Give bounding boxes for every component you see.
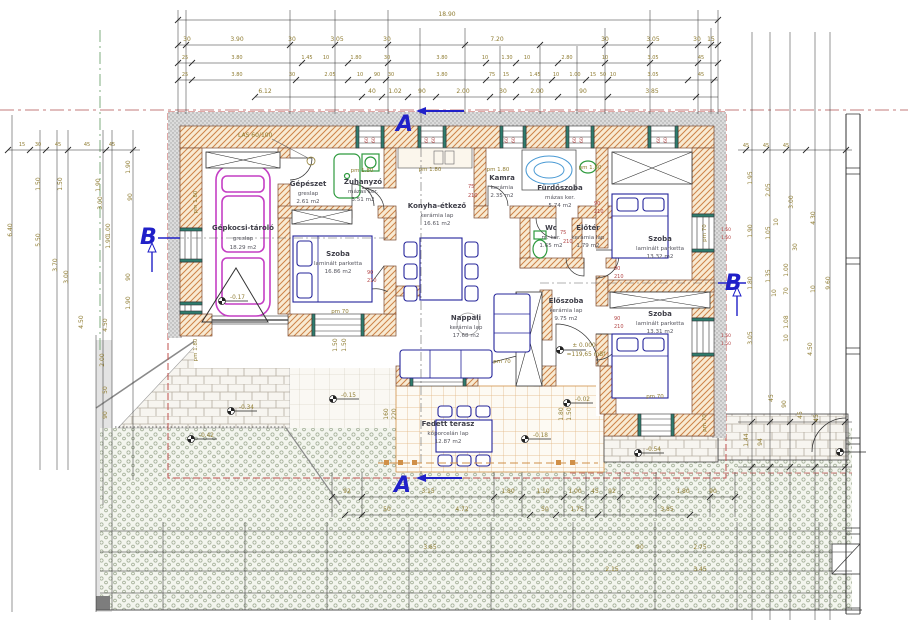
- svg-text:90: 90: [614, 266, 620, 272]
- dimension-value: 3.05: [647, 55, 658, 61]
- dimension-value: 6.40: [7, 223, 14, 237]
- dimension-value: 3.00: [97, 196, 104, 210]
- dimension-value: 45: [797, 411, 804, 419]
- parapet-label: pm 70: [331, 309, 349, 315]
- parapet-label: pm 70: [702, 414, 708, 432]
- dim-row-left-small: 1530454545: [19, 142, 115, 148]
- room-name: Kamra: [489, 174, 515, 182]
- level-value: -0.18: [533, 433, 548, 439]
- parapet-label: pm 70: [646, 394, 664, 400]
- dimension-value: 70: [783, 287, 790, 295]
- dimension-value: 3.00: [63, 270, 70, 284]
- svg-text:60: 60: [424, 137, 430, 143]
- dimension-value: 10: [553, 72, 559, 78]
- level-value: -0.54: [646, 447, 661, 453]
- level-value: -0.34: [239, 405, 254, 411]
- section-a-top-label: A: [394, 112, 413, 137]
- room-name: Zuhanyzó: [344, 178, 382, 186]
- dimension-value: 3.00: [788, 195, 795, 209]
- dimension-value: 3.05: [647, 72, 658, 78]
- dimension-value: 5.50: [35, 233, 42, 247]
- dimension-value: 10: [771, 289, 778, 297]
- dimension-value: 1.00: [105, 223, 112, 237]
- dimension-value: 1.44: [743, 433, 750, 447]
- dimension-value: 1.00: [569, 72, 580, 78]
- room-area: 3.51 m2: [351, 197, 374, 203]
- dimension-value: 90: [579, 88, 587, 95]
- level-value: -0.42: [199, 433, 214, 439]
- dimension-value: 30: [288, 36, 296, 43]
- parapet-label: pm 70: [493, 359, 511, 365]
- dimension-value: 1.90: [95, 178, 102, 192]
- room-name: Előtér: [576, 223, 600, 232]
- dimension-value: 1.45: [529, 72, 540, 78]
- parapet-label: pm 1.80: [193, 190, 199, 213]
- dimension-value: 3.15: [421, 488, 435, 495]
- dimension-value: 1.00: [783, 263, 790, 277]
- room-floor: kőporcelán lap: [427, 430, 469, 437]
- dimension-value: 3.80: [436, 72, 447, 78]
- dimension-value: 45: [55, 142, 61, 148]
- dimension-value: 30: [693, 36, 701, 43]
- dimension-value: 30: [384, 55, 390, 61]
- svg-text:60: 60: [511, 137, 517, 143]
- dimension-value: 15: [503, 72, 509, 78]
- dimension-value: 45: [763, 143, 769, 149]
- room-floor: laminált parketta: [636, 320, 684, 327]
- dimension-value: 4.30: [810, 211, 817, 225]
- dimension-value: 15: [590, 72, 596, 78]
- dimension-value: 45: [698, 72, 704, 78]
- dimension-value: 10: [357, 72, 363, 78]
- dimension-value: 45: [783, 143, 789, 149]
- dimension-value: 90: [125, 273, 132, 281]
- dimension-value: 4.72: [455, 506, 469, 513]
- dimension-value: 90: [127, 193, 134, 201]
- dimension-value: 1.75: [570, 506, 584, 513]
- dimension-value: 15: [19, 142, 25, 148]
- room-floor: greslap: [298, 191, 319, 197]
- dimension-value: 25: [182, 55, 188, 61]
- svg-text:1.50: 1.50: [721, 227, 731, 233]
- terrace-tiles: [396, 386, 604, 472]
- dimension-value: 1.50: [35, 177, 42, 191]
- dimension-value: 6.12: [258, 88, 272, 95]
- room-floor: laminált parketta: [314, 260, 362, 267]
- dimension-value: 1.50: [57, 177, 64, 191]
- dimension-value: 30: [792, 243, 799, 251]
- svg-text:1.50: 1.50: [721, 235, 731, 241]
- dimension-value: 1.90: [747, 224, 754, 238]
- dimension-value: 30: [499, 88, 507, 95]
- dimension-value: 25: [182, 72, 188, 78]
- svg-text:60: 60: [371, 137, 377, 143]
- dimension-value: 90: [374, 72, 380, 78]
- room-area: 16.86 m2: [325, 269, 352, 275]
- dimension-value: 45: [84, 142, 90, 148]
- dimension-value: 3.05: [747, 331, 754, 345]
- window-south-room: [312, 314, 364, 336]
- room-area: 12.87 m2: [435, 439, 462, 445]
- window-left-1: [180, 228, 202, 262]
- svg-text:210: 210: [563, 239, 573, 245]
- room-label-nappali: Nappali kerámia lap 17.68 m2: [450, 314, 483, 339]
- dimension-value: 9.60: [825, 276, 832, 290]
- dimension-value: 10: [810, 285, 817, 293]
- section-b-left-label: B: [140, 225, 157, 250]
- dimension-value: 1.05: [765, 226, 772, 240]
- dimension-value: 1.50: [341, 338, 348, 352]
- dimension-value: 1.30: [501, 55, 512, 61]
- window-south-szoba2: [638, 414, 674, 436]
- dimension-value: 3.65: [423, 544, 437, 551]
- svg-text:75: 75: [468, 184, 474, 190]
- svg-text:75: 75: [560, 230, 566, 236]
- room-floor: kerámia: [491, 184, 514, 191]
- dimension-value: 45: [768, 394, 775, 402]
- level-value: -0.02: [575, 397, 590, 403]
- parapet-label: pm 1.80: [193, 338, 199, 361]
- dimension-value: 2.05: [324, 72, 335, 78]
- dimension-value: 3.05: [646, 36, 660, 43]
- svg-text:210: 210: [468, 193, 478, 199]
- room-floor: m. ker.: [541, 235, 560, 241]
- parapet-label: pm 1.80: [419, 167, 442, 173]
- dimension-value: 10: [323, 55, 329, 61]
- bed-right-bottom: [612, 334, 668, 398]
- svg-text:1.50: 1.50: [721, 341, 731, 347]
- dimension-value: 30: [35, 142, 41, 148]
- window-top-1: [356, 126, 384, 148]
- room-floor: kerámia lap: [550, 307, 583, 314]
- dimension-value: 3.85: [660, 506, 674, 513]
- window-left-2: [180, 302, 202, 314]
- dimension-value: 2.00: [456, 88, 470, 95]
- svg-text:90: 90: [614, 316, 620, 322]
- svg-text:210: 210: [594, 209, 604, 215]
- garage-door: [212, 316, 288, 324]
- dimension-value: 2.75: [693, 544, 707, 551]
- dimension-value: 2.15: [605, 566, 619, 573]
- svg-text:90: 90: [367, 270, 373, 276]
- dimension-value: 1.90: [125, 160, 132, 174]
- dimension-value: 90: [709, 488, 717, 495]
- dimension-value: 45: [743, 143, 749, 149]
- svg-text:60: 60: [663, 137, 669, 143]
- dimension-value: 1.50: [332, 338, 339, 352]
- room-floor: kerámia lap: [572, 234, 605, 241]
- room-area: 2.61 m2: [296, 199, 319, 205]
- dimension-value: 1.80: [501, 488, 515, 495]
- svg-text:60: 60: [656, 137, 662, 143]
- room-name: Gépészet: [290, 180, 327, 188]
- dimension-value: 30: [289, 72, 295, 78]
- overall-dimension: 18.90: [438, 11, 455, 18]
- svg-text:210: 210: [367, 278, 377, 284]
- dimension-value: 45: [698, 55, 704, 61]
- dimension-value: 90: [636, 544, 644, 551]
- dimension-value: 1.50: [566, 407, 573, 421]
- dimension-value: 2.05: [765, 183, 772, 197]
- dimension-value: 94: [757, 438, 764, 446]
- dimension-value: 45: [109, 142, 115, 148]
- dimension-value: 3.85: [645, 88, 659, 95]
- dimension-value: 50: [383, 506, 391, 513]
- dimension-value: 160: [383, 408, 390, 420]
- dimension-value: 50: [600, 72, 606, 78]
- room-area: 5.74 m2: [548, 203, 571, 209]
- dimension-value: 3.45: [693, 566, 707, 573]
- dimension-value: 3.80: [231, 55, 242, 61]
- svg-text:60: 60: [364, 137, 370, 143]
- room-floor: kerámia lap: [450, 324, 483, 331]
- lintel-label: LAS 60/100: [238, 132, 273, 139]
- insulation-band-top: [168, 112, 726, 126]
- dimension-value: 30: [388, 72, 394, 78]
- room-name: Szoba: [326, 250, 350, 258]
- dimension-value: 1.95: [747, 171, 754, 185]
- dim-col-right: 1.952.053.004.309.601.901.05101.351.0030…: [747, 171, 832, 356]
- entry-path: [718, 414, 848, 460]
- dimension-value: 7.20: [490, 36, 504, 43]
- dimension-value: 4.50: [78, 315, 85, 329]
- section-a-bottom-label: A: [392, 473, 411, 498]
- room-area: 18.29 m2: [230, 245, 257, 251]
- svg-text:210: 210: [614, 274, 624, 280]
- dimension-value: 2.00: [530, 88, 544, 95]
- dimension-value: 75: [489, 72, 495, 78]
- room-name: Fürdőszoba: [537, 183, 583, 192]
- dimension-value: 15: [707, 36, 715, 43]
- dimension-value: 30: [183, 36, 191, 43]
- dimension-value: 90: [102, 411, 109, 419]
- level-value: -0.17: [230, 295, 245, 301]
- dimension-value: 30: [601, 36, 609, 43]
- window-top-2: [418, 126, 446, 148]
- dim-row-top3: 253.801.45101.80303.80101.30102.80103.05…: [182, 55, 704, 61]
- dimension-value: 1.90: [105, 235, 112, 249]
- dimension-value: 3.70: [52, 258, 59, 272]
- entry-path2: [604, 436, 718, 462]
- dimension-value: 220: [391, 408, 398, 420]
- dimension-value: 1.35: [765, 269, 772, 283]
- dimension-value: 1.45: [301, 55, 312, 61]
- dimension-value: 1.80: [558, 407, 565, 421]
- room-name: Gépkocsi-tároló: [212, 224, 274, 232]
- dim-row-top5: 6.12401.02902.00302.00903.85: [258, 88, 659, 95]
- parapet-label: pm 1.80: [351, 168, 374, 174]
- datum-level: ± 0.000: [572, 343, 596, 349]
- dimension-value: 10: [524, 55, 530, 61]
- dim-row-right-small: 454545: [743, 143, 789, 149]
- room-area: 13.31 m2: [647, 329, 674, 335]
- dimension-value: 30: [383, 36, 391, 43]
- room-label-kamra: Kamra kerámia 2.35 m2: [489, 174, 515, 199]
- room-floor: kerámia lap: [421, 212, 454, 219]
- parapet-label: pm 1.80: [579, 165, 602, 171]
- room-name: Wc: [545, 224, 557, 232]
- parapet-label: pm 70: [702, 224, 708, 242]
- parapet-label: pm 1.80: [487, 167, 510, 173]
- dimension-value: 4.50: [102, 318, 109, 332]
- room-area: 17.68 m2: [453, 333, 480, 339]
- svg-text:90: 90: [594, 201, 600, 207]
- dimension-value: 2.00: [99, 353, 106, 367]
- window-top-3: [500, 126, 526, 148]
- dim-row-top2: 303.90303.05307.20303.053015: [183, 36, 715, 43]
- dimension-value: 92: [608, 488, 616, 495]
- svg-text:210: 210: [614, 324, 624, 330]
- window-top-5: [648, 126, 678, 148]
- dimension-value: 10: [482, 55, 488, 61]
- svg-text:60: 60: [579, 137, 585, 143]
- dimension-value: 45: [591, 488, 599, 495]
- window-top-4: [566, 126, 594, 148]
- dimension-value: 10: [610, 72, 616, 78]
- dimension-value: 40: [368, 88, 376, 95]
- room-area: 2.35 m2: [490, 193, 513, 199]
- room-name: Konyha-étkező: [408, 201, 467, 210]
- room-area: 16.61 m2: [424, 221, 451, 227]
- room-floor: mázas ker.: [348, 188, 378, 195]
- room-name: Fedett terasz: [422, 420, 475, 428]
- dimension-value: 3.80: [436, 55, 447, 61]
- dimension-value: 1.80: [676, 488, 690, 495]
- dimension-value: 1.08: [783, 315, 790, 329]
- dimension-value: 1.00: [568, 488, 582, 495]
- dimension-value: 10: [773, 218, 780, 226]
- dimension-value: 3.05: [330, 36, 344, 43]
- dimension-value: 1.10: [536, 488, 550, 495]
- dimension-value: 1.80: [747, 276, 754, 290]
- svg-text:60: 60: [504, 137, 510, 143]
- dimension-value: 50: [541, 506, 549, 513]
- dimension-value: 4.50: [807, 342, 814, 356]
- dimension-value: 50: [102, 386, 109, 394]
- room-name: Szoba: [648, 235, 672, 243]
- window-right-2: [692, 318, 714, 356]
- room-floor: mázas ker.: [545, 194, 575, 201]
- dimension-value: 92: [343, 488, 351, 495]
- dim-row-overall: 18.90: [438, 11, 455, 18]
- level-value: -0.15: [341, 393, 356, 399]
- dim-row-top4: 253.80302.051090303.8075151.45101.001550…: [182, 72, 704, 78]
- svg-text:60: 60: [572, 137, 578, 143]
- dimension-value: 3.90: [230, 36, 244, 43]
- dimension-value: 1.02: [388, 88, 402, 95]
- room-name: Előszoba: [549, 296, 584, 305]
- room-name: Szoba: [648, 310, 672, 318]
- dining-table: [404, 238, 478, 301]
- datum-elevation: =119,65 mBf: [567, 352, 607, 358]
- svg-text:60: 60: [431, 137, 437, 143]
- dimension-value: 2.80: [561, 55, 572, 61]
- room-area: 1.65 m2: [539, 243, 562, 249]
- room-name: Nappali: [451, 314, 481, 322]
- dimension-value: 1.90: [125, 296, 132, 310]
- room-floor: laminált parketta: [636, 245, 684, 252]
- dim-col-left: 6.405.503.703.001.501.501.901.903.001.00…: [7, 160, 134, 419]
- room-area: 13.32 m2: [647, 254, 674, 260]
- dimension-value: 90: [781, 400, 788, 408]
- dimension-value: 1.80: [350, 55, 361, 61]
- dimension-value: 90: [418, 88, 426, 95]
- dimension-value: 10: [602, 55, 608, 61]
- corner-block: [96, 596, 110, 610]
- dimension-value: 10: [783, 334, 790, 342]
- room-floor: greslap: [233, 236, 254, 242]
- room-area: 1.79 m2: [576, 243, 599, 249]
- floor-plan-drawing: A A B B 18.90 303.90303.05307.20303.0530…: [0, 0, 908, 629]
- room-area: 9.75 m2: [554, 316, 577, 322]
- dimension-value: 3.80: [231, 72, 242, 78]
- dimension-value: 45: [813, 414, 820, 422]
- svg-text:1.50: 1.50: [721, 333, 731, 339]
